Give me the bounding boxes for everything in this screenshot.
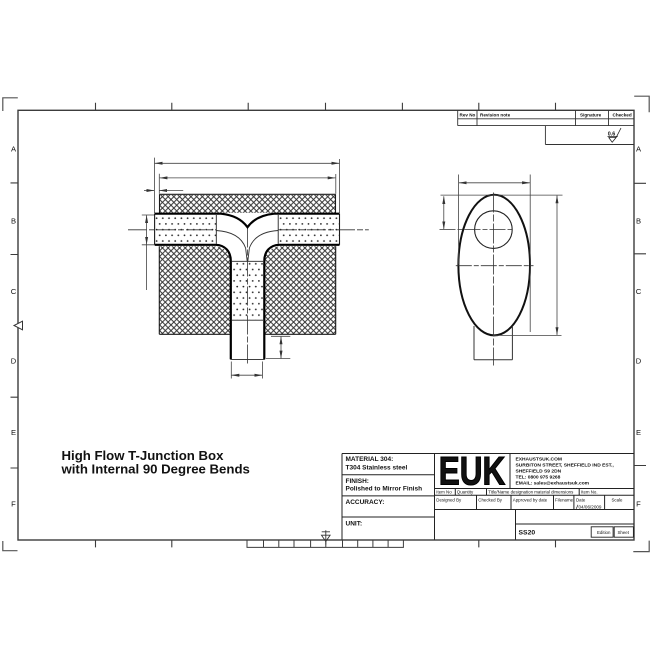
svg-text:Approved by date: Approved by date	[513, 497, 548, 502]
svg-text:Sheet: Sheet	[618, 530, 630, 535]
svg-text:C: C	[636, 287, 642, 296]
svg-text:EUK: EUK	[439, 450, 506, 494]
svg-text:with Internal 90 Degree Bends: with Internal 90 Degree Bends	[61, 461, 250, 476]
svg-text:Edition: Edition	[597, 530, 611, 535]
svg-text:EMAIL: sales@exhaustsuk.com: EMAIL: sales@exhaustsuk.com	[516, 481, 590, 487]
svg-text:ACCURACY:: ACCURACY:	[346, 499, 385, 506]
svg-text:SURBITON STREET, SHEFFIELD IND: SURBITON STREET, SHEFFIELD IND EST.,	[516, 462, 615, 468]
svg-text:EXHAUSTSUK.COM: EXHAUSTSUK.COM	[516, 456, 562, 462]
svg-text:UNIT:: UNIT:	[346, 520, 363, 527]
svg-text:FINISH:: FINISH:	[346, 478, 369, 485]
svg-text:SHEFFIELD S9 2DN: SHEFFIELD S9 2DN	[516, 469, 562, 475]
svg-text:Revision note: Revision note	[480, 112, 511, 117]
svg-text:MATERIAL 304:: MATERIAL 304:	[346, 456, 394, 463]
svg-text:Filename: Filename	[555, 497, 574, 502]
svg-text:TEL: 0800 975 9268: TEL: 0800 975 9268	[516, 475, 561, 481]
svg-text:Signature: Signature	[580, 112, 602, 117]
svg-text:Date: Date	[576, 497, 586, 502]
svg-text:Title/Name designation materia: Title/Name designation material dimensio…	[488, 490, 574, 495]
svg-text:E: E	[11, 428, 16, 437]
svg-text:D: D	[11, 357, 17, 366]
svg-text:Quantity: Quantity	[457, 490, 474, 495]
svg-text:B: B	[636, 216, 641, 225]
svg-text:Designed By: Designed By	[436, 497, 462, 502]
svg-text:Polished to Mirror Finish: Polished to Mirror Finish	[346, 486, 423, 493]
svg-text:E: E	[636, 428, 641, 437]
svg-text:F: F	[11, 499, 16, 508]
svg-text:C: C	[11, 287, 17, 296]
svg-text:B: B	[11, 216, 16, 225]
svg-text:Item No.: Item No.	[581, 490, 598, 495]
svg-text:Checked: Checked	[613, 112, 632, 117]
svg-text:04/06/2009: 04/06/2009	[579, 505, 602, 510]
svg-text:Item No: Item No	[436, 490, 452, 495]
svg-text:SS20: SS20	[519, 530, 536, 537]
svg-text:Rev No: Rev No	[460, 112, 476, 117]
svg-text:F: F	[636, 499, 641, 508]
svg-text:D: D	[636, 357, 642, 366]
svg-text:T304 Stainless steel: T304 Stainless steel	[346, 465, 408, 472]
svg-text:Checked By: Checked By	[478, 497, 502, 502]
svg-text:Scale: Scale	[612, 497, 624, 502]
